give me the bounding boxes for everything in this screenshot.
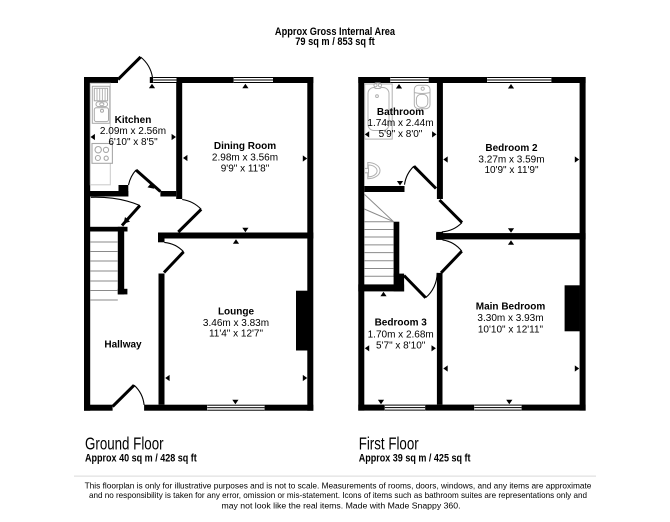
svg-text:2.09m x 2.56m: 2.09m x 2.56m [100,126,166,137]
svg-text:3.30m x 3.93m: 3.30m x 3.93m [477,313,543,324]
svg-text:Kitchen: Kitchen [115,115,152,126]
svg-text:First Floor: First Floor [359,435,419,454]
svg-text:and no responsibility is taken: and no responsibility is taken for any e… [89,491,587,500]
svg-text:Dining Room: Dining Room [214,141,276,152]
svg-text:Lounge: Lounge [218,307,255,318]
svg-text:This floorplan is only for ill: This floorplan is only for illustrative … [85,481,592,491]
svg-text:Approx 40 sq m / 428 sq ft: Approx 40 sq m / 428 sq ft [85,453,197,465]
svg-text:10'10" x 12'11": 10'10" x 12'11" [478,325,544,336]
svg-text:Ground Floor: Ground Floor [85,435,164,454]
svg-text:Bedroom 2: Bedroom 2 [485,143,538,154]
svg-text:1.74m x 2.44m: 1.74m x 2.44m [367,118,433,129]
svg-text:Bedroom 3: Bedroom 3 [375,318,428,329]
svg-text:Hallway: Hallway [104,340,142,351]
svg-text:6'10" x 8'5": 6'10" x 8'5" [108,137,158,148]
svg-text:Bathroom: Bathroom [377,107,424,118]
svg-text:Main Bedroom: Main Bedroom [476,302,546,313]
svg-text:3.46m x 3.83m: 3.46m x 3.83m [203,318,269,329]
svg-text:Approx 39 sq m / 425 sq ft: Approx 39 sq m / 425 sq ft [359,453,471,465]
svg-text:9'9" x 11'8": 9'9" x 11'8" [221,163,270,174]
svg-text:5'9" x 8'0": 5'9" x 8'0" [379,129,423,140]
svg-text:79 sq m / 853 sq ft: 79 sq m / 853 sq ft [295,36,375,48]
svg-text:may not look like the real ite: may not look like the real items. Made w… [221,500,460,510]
svg-text:2.98m x 3.56m: 2.98m x 3.56m [212,152,278,163]
svg-text:11'4" x 12'7": 11'4" x 12'7" [209,329,264,340]
svg-text:1.70m x 2.68m: 1.70m x 2.68m [368,329,434,340]
svg-text:5'7" x 8'10": 5'7" x 8'10" [376,340,426,351]
svg-text:3.27m x 3.59m: 3.27m x 3.59m [478,154,544,165]
svg-text:10'9" x 11'9": 10'9" x 11'9" [484,165,539,176]
